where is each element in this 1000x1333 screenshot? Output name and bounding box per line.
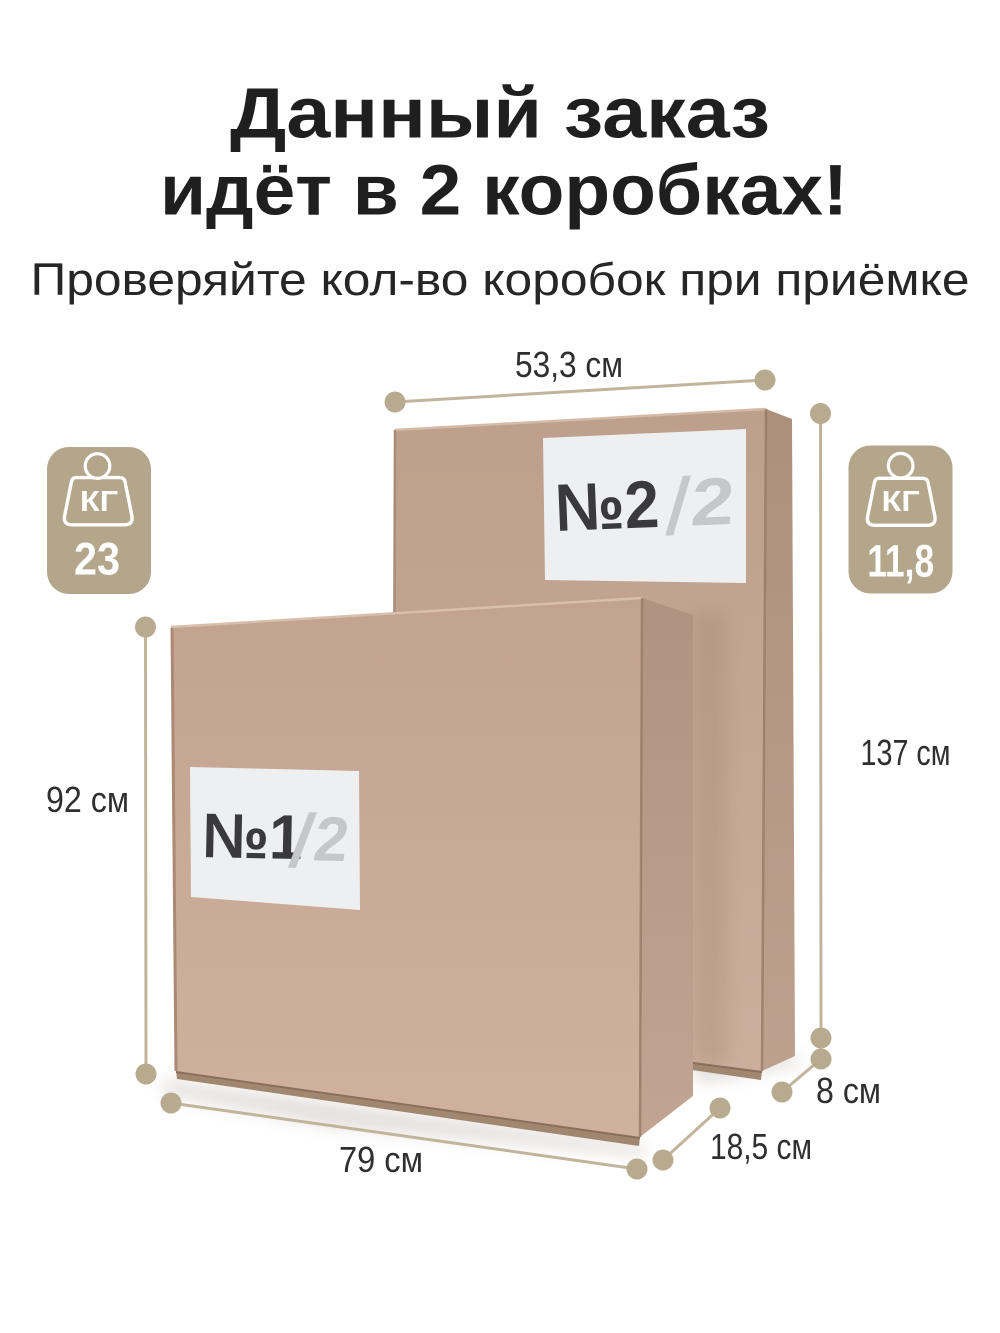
- svg-text:79 см: 79 см: [339, 1139, 423, 1180]
- svg-text:11,8: 11,8: [867, 535, 934, 586]
- svg-text:Проверяйте кол-во коробок при: Проверяйте кол-во коробок при приёмке: [31, 254, 970, 305]
- svg-text:53,3 см: 53,3 см: [515, 344, 623, 385]
- svg-text:18,5 см: 18,5 см: [710, 1126, 812, 1167]
- svg-text:идёт в 2 коробках!: идёт в 2 коробках!: [160, 152, 848, 231]
- svg-text:23: 23: [74, 534, 120, 585]
- svg-text:8 см: 8 см: [816, 1070, 881, 1111]
- svg-text:КГ: КГ: [80, 486, 118, 518]
- svg-text:92 см: 92 см: [46, 779, 129, 820]
- svg-text:КГ: КГ: [882, 486, 920, 518]
- svg-text:№2: №2: [554, 467, 661, 546]
- svg-text:Данный заказ: Данный заказ: [230, 75, 770, 154]
- svg-text:137 см: 137 см: [861, 732, 951, 773]
- svg-text:2: 2: [689, 464, 737, 541]
- svg-text:№1: №1: [202, 801, 303, 873]
